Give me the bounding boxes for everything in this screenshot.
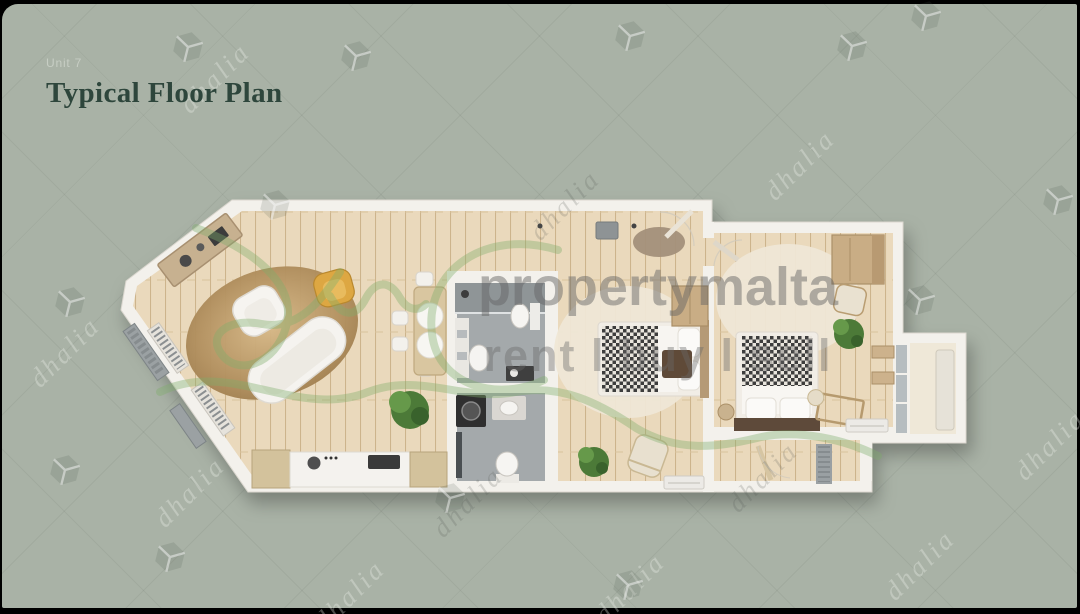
balcony-glass-door [896, 345, 907, 433]
wall-lamp [632, 224, 637, 229]
shower-panel [456, 432, 462, 478]
headboard [700, 320, 709, 398]
bedroom1-bed [598, 320, 709, 398]
hall-rug [633, 227, 685, 257]
kitchen-counter [252, 450, 447, 488]
bedroom2-wardrobe [832, 235, 884, 284]
hall-bench [596, 222, 618, 239]
ac-unit [664, 476, 704, 489]
radiator [816, 444, 832, 484]
toilet [511, 304, 529, 328]
balcony-bench [936, 350, 954, 430]
kitchen-sink [308, 457, 321, 470]
unit-label: Unit 7 [46, 56, 283, 70]
headboard [734, 418, 820, 431]
toilet [496, 452, 518, 476]
shower-head [461, 290, 469, 298]
slide: propertymalta rent l buy l sell dhalia d… [0, 0, 1080, 614]
throw-blanket [662, 350, 692, 378]
wall-lamp [538, 224, 543, 229]
bedroom2-door-gap [703, 238, 714, 266]
basin [500, 401, 518, 415]
ac-unit [846, 419, 888, 432]
sink [469, 345, 489, 371]
pouf [718, 404, 734, 420]
kitchen-hob [368, 455, 400, 469]
bedroom2-chair [832, 283, 867, 317]
slide-header: Unit 7 Typical Floor Plan [46, 56, 283, 110]
toilet-tank [530, 303, 540, 330]
bedroom1-wardrobe [672, 286, 708, 326]
page-title: Typical Floor Plan [46, 77, 283, 110]
bedroom2-bed [734, 332, 820, 431]
